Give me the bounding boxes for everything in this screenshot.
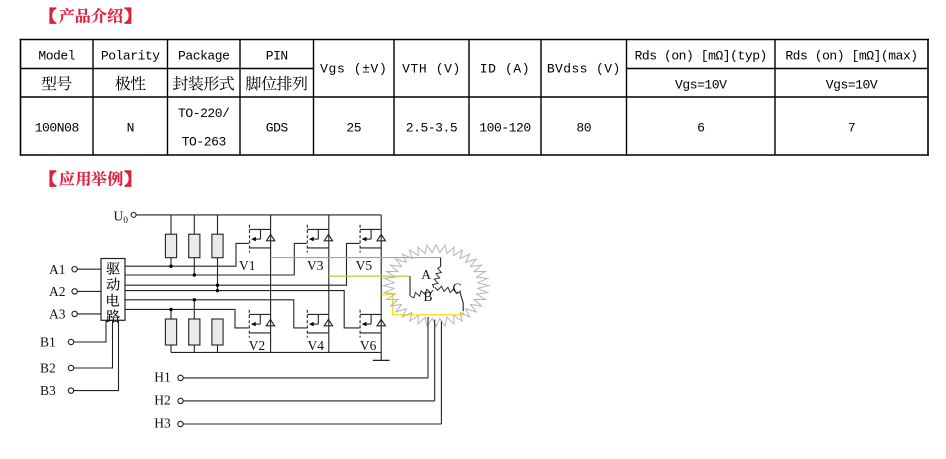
svg-text:Vgs=10V: Vgs=10V — [675, 77, 727, 92]
svg-text:7: 7 — [848, 121, 855, 136]
svg-text:H2: H2 — [154, 392, 171, 407]
svg-text:Model: Model — [38, 49, 75, 64]
svg-text:B2: B2 — [40, 361, 56, 376]
svg-text:U: U — [114, 208, 124, 223]
svg-text:80: 80 — [576, 121, 591, 136]
svg-text:Vgs=10V: Vgs=10V — [826, 77, 878, 92]
svg-text:Vgs (±V): Vgs (±V) — [320, 61, 387, 76]
svg-text:2.5-3.5: 2.5-3.5 — [406, 121, 457, 136]
svg-text:PIN: PIN — [266, 49, 288, 64]
svg-text:Polarity: Polarity — [101, 49, 160, 64]
svg-text:25: 25 — [346, 121, 361, 136]
svg-text:V5: V5 — [356, 258, 373, 273]
svg-text:100-120: 100-120 — [479, 121, 530, 136]
svg-text:VTH (V): VTH (V) — [402, 61, 461, 76]
svg-text:V6: V6 — [360, 338, 377, 353]
svg-text:Rds (on) [mΩ](max): Rds (on) [mΩ](max) — [785, 49, 917, 64]
svg-text:V2: V2 — [249, 338, 266, 353]
svg-text:TO-220/: TO-220/ — [178, 106, 230, 121]
svg-text:H3: H3 — [154, 415, 171, 430]
svg-text:Package: Package — [178, 49, 229, 64]
svg-text:V4: V4 — [308, 338, 325, 353]
svg-text:A2: A2 — [49, 284, 66, 299]
svg-text:B1: B1 — [40, 335, 56, 350]
svg-text:B3: B3 — [40, 383, 56, 398]
svg-text:BVdss (V): BVdss (V) — [547, 61, 621, 76]
svg-text:A: A — [421, 267, 431, 282]
svg-text:A3: A3 — [49, 307, 66, 322]
svg-text:V3: V3 — [307, 258, 324, 273]
svg-text:V1: V1 — [239, 258, 256, 273]
svg-text:A1: A1 — [49, 262, 66, 277]
svg-text:ID (A): ID (A) — [480, 61, 530, 76]
svg-text:N: N — [127, 121, 134, 136]
svg-text:0: 0 — [123, 216, 128, 226]
svg-text:Rds (on) [mΩ](typ): Rds (on) [mΩ](typ) — [635, 49, 767, 64]
svg-text:B: B — [424, 289, 433, 304]
svg-text:C: C — [453, 281, 462, 296]
svg-text:H1: H1 — [154, 369, 171, 384]
svg-text:GDS: GDS — [266, 121, 289, 136]
svg-text:6: 6 — [697, 121, 704, 136]
svg-text:TO-263: TO-263 — [182, 134, 226, 149]
svg-text:100N08: 100N08 — [35, 121, 79, 136]
